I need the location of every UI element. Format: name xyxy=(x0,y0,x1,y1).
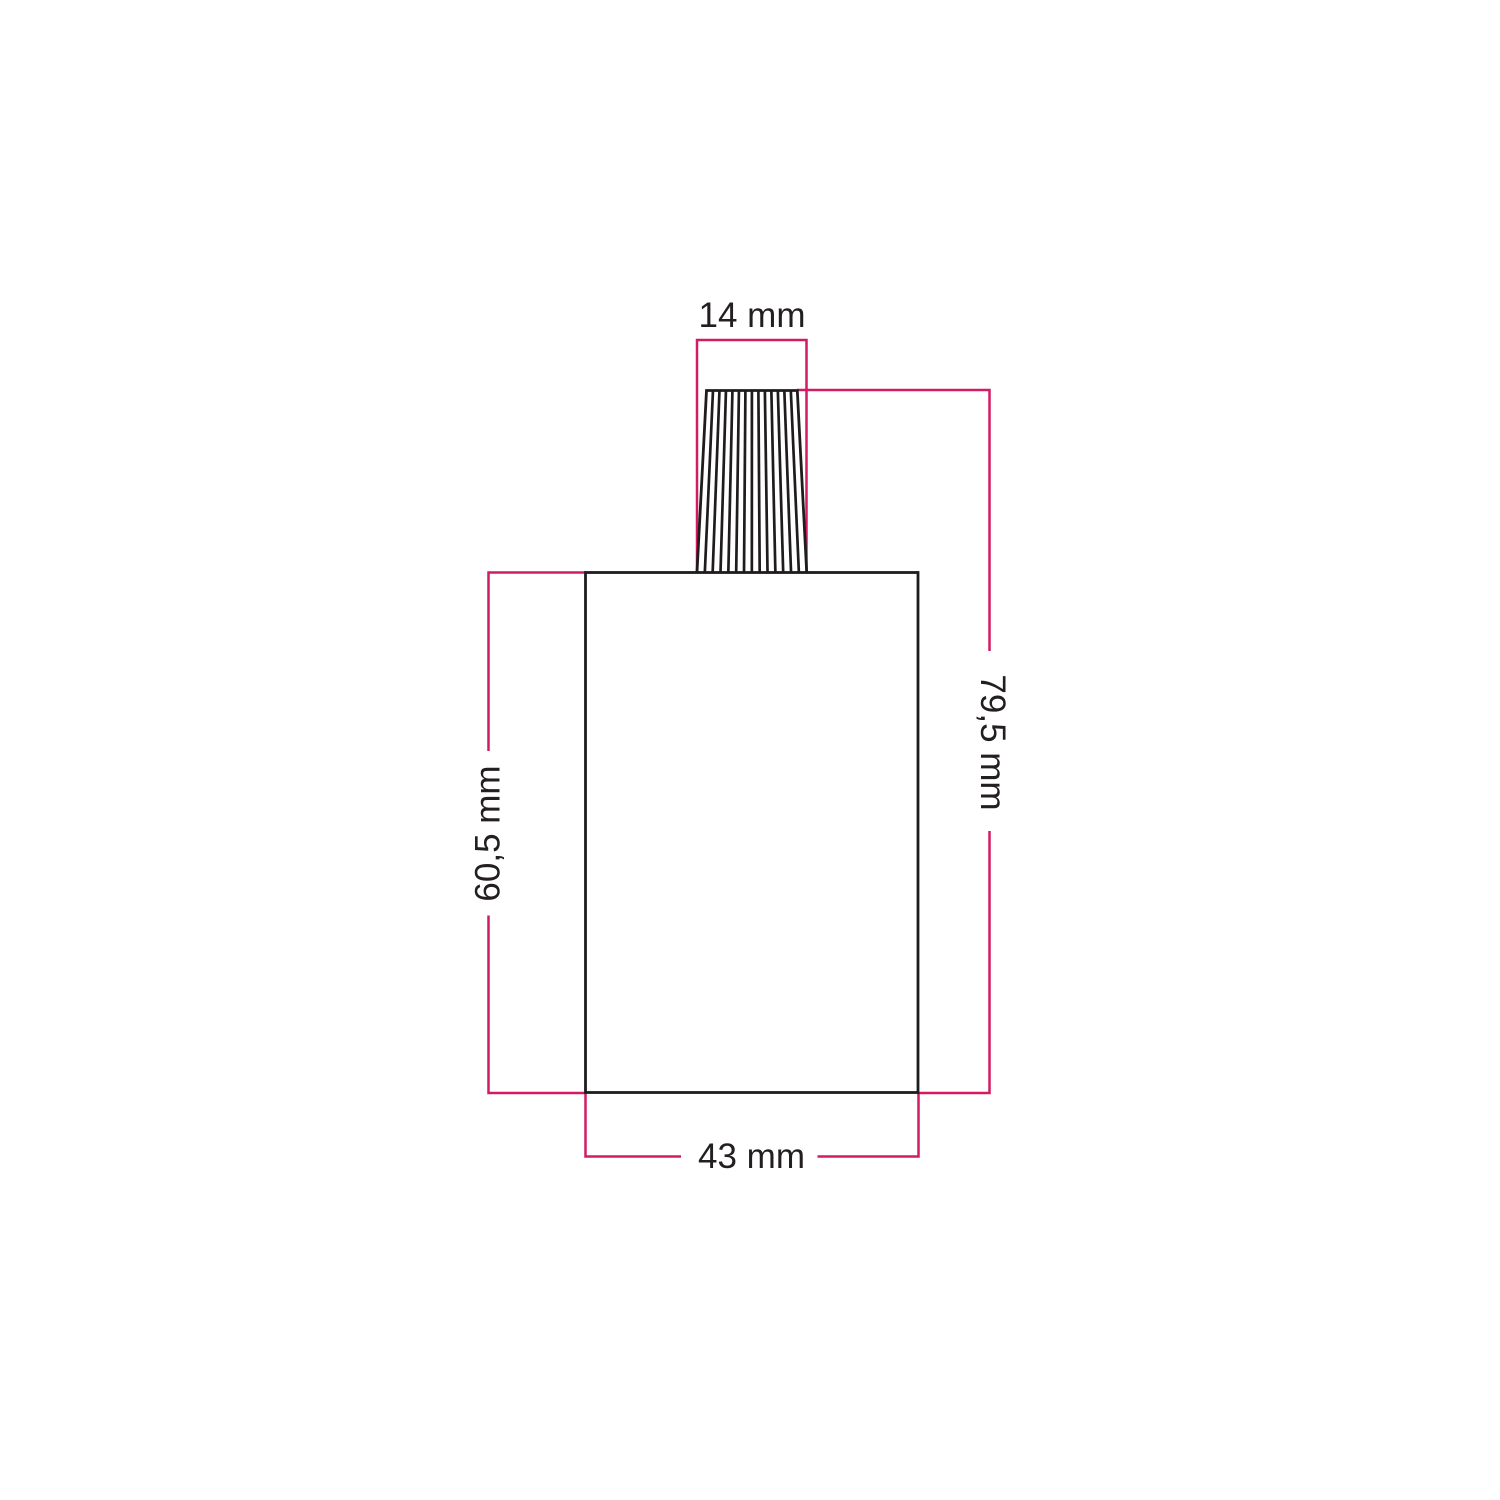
svg-text:43 mm: 43 mm xyxy=(698,1137,805,1176)
svg-text:79,5 mm: 79,5 mm xyxy=(973,674,1012,810)
svg-text:14 mm: 14 mm xyxy=(699,296,806,335)
svg-text:60,5 mm: 60,5 mm xyxy=(469,765,508,901)
